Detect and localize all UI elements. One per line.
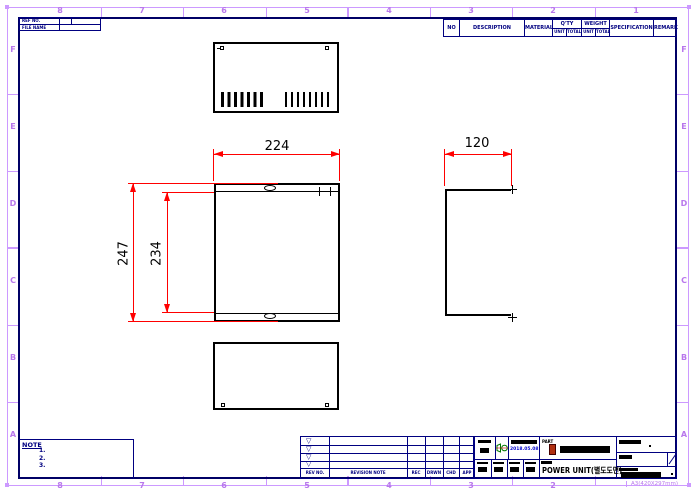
- plus-mark: [512, 313, 513, 322]
- bottom-view: [213, 342, 339, 410]
- app-header: APP: [459, 471, 475, 475]
- zone-tick: [512, 7, 513, 17]
- tick-mark: [319, 187, 320, 196]
- table-line: [616, 466, 676, 467]
- corner-mark: [5, 483, 9, 487]
- table-line: [301, 468, 473, 469]
- screw-hole-tail: [217, 48, 220, 49]
- side-view-web: [445, 189, 447, 316]
- col-description: DESCRIPTION: [460, 26, 524, 31]
- zone-tick: [595, 7, 596, 17]
- dim-arrow: [445, 151, 454, 157]
- col-no: NO: [444, 26, 459, 31]
- file-name-label: FILE NAME: [22, 26, 46, 30]
- flange-line-top: [215, 191, 339, 192]
- dim-arrow: [130, 313, 136, 322]
- note-item: 3.: [39, 463, 45, 469]
- dim-text-120: 120: [454, 136, 500, 151]
- table-line: [59, 18, 60, 30]
- dimension-line: [167, 192, 168, 313]
- title-label: [541, 461, 552, 464]
- rev-no-header: REV NO.: [301, 471, 329, 475]
- zone-label-col: 5: [297, 481, 317, 490]
- drwn-header: DRWN: [425, 471, 443, 475]
- col-remark: REMARK: [654, 26, 677, 31]
- zone-label-col: 1: [626, 6, 646, 15]
- dim-arrow: [164, 192, 170, 201]
- plus-mark: [512, 185, 513, 194]
- dimension-line: [445, 154, 512, 155]
- corner-mark: [687, 5, 691, 9]
- zone-tick: [677, 402, 689, 403]
- drawing-sheet: 8 7 6 5 4 3 2 1 8 7 6 5 4 3 2 F E D C B …: [0, 0, 696, 492]
- col-weight-unit: UNIT: [582, 30, 595, 34]
- zone-label-col: 2: [543, 6, 563, 15]
- zone-label-row: D: [8, 199, 18, 208]
- title-block: 2018.05.08 PART POWER UNIT(별도도면): [474, 436, 677, 479]
- screw-hole: [220, 46, 224, 50]
- zone-tick: [677, 325, 689, 326]
- redacted-signature: [478, 467, 487, 472]
- issued-date-value: 2018.05.08: [510, 447, 538, 452]
- zone-tick: [677, 94, 689, 95]
- issued-date-label: [511, 440, 537, 444]
- zone-label-row: B: [8, 353, 18, 362]
- redacted-label: [619, 468, 638, 471]
- zone-tick: [7, 94, 18, 95]
- table-line: [491, 459, 492, 478]
- redacted-label: [478, 440, 491, 443]
- zone-label-row: C: [8, 276, 18, 285]
- zone-label-row: A: [8, 430, 18, 439]
- zone-tick: [7, 325, 18, 326]
- col-specification: SPECIFICATION: [610, 26, 653, 31]
- drawing-title: POWER UNIT(별도도면): [542, 465, 622, 476]
- zone-label-col: 3: [461, 6, 481, 15]
- zone-label-col: 3: [461, 481, 481, 490]
- zone-label-col: 7: [132, 481, 152, 490]
- revision-note-header: REVISION NOTE: [329, 471, 407, 475]
- latch-top: [264, 185, 276, 191]
- table-line: [475, 459, 616, 460]
- zone-label-row: E: [8, 122, 18, 131]
- rec-header: REC: [407, 471, 425, 475]
- dim-arrow: [164, 304, 170, 313]
- zone-label-row: E: [679, 122, 689, 131]
- redacted-company-name: [560, 446, 610, 453]
- zone-label-col: 8: [50, 6, 70, 15]
- corner-mark: [5, 5, 9, 9]
- note-item: 1.: [39, 448, 45, 454]
- screw-hole: [325, 46, 329, 50]
- screw-hole: [325, 403, 329, 407]
- zone-label-row: D: [679, 199, 689, 208]
- col-weight-total: TOTAL: [596, 30, 609, 34]
- zone-label-col: 5: [297, 6, 317, 15]
- redacted-label: [619, 440, 641, 444]
- note-box-line: [133, 439, 134, 479]
- center-mark: [7, 247, 18, 249]
- table-line: [539, 437, 540, 478]
- parts-list-header: NO DESCRIPTION MATERIAL Q'TY WEIGHT UNIT…: [443, 19, 677, 37]
- zone-label-col: 6: [214, 481, 234, 490]
- zone-label-row: C: [679, 276, 689, 285]
- zone-label-col: 8: [50, 481, 70, 490]
- zone-label-col: 4: [379, 481, 399, 490]
- table-line: [71, 18, 72, 24]
- zone-tick: [7, 402, 18, 403]
- zone-label-row: A: [679, 430, 689, 439]
- vent-slots-right: [285, 92, 329, 107]
- dim-arrow: [503, 151, 512, 157]
- revision-marker: ▽: [306, 445, 311, 453]
- redacted-value: [649, 445, 651, 447]
- redacted-value: [621, 472, 661, 478]
- zone-label-col: 4: [379, 6, 399, 15]
- redacted-label: [509, 462, 520, 464]
- revision-marker: ▽: [306, 437, 311, 445]
- center-mark: [347, 7, 349, 17]
- zone-tick: [677, 171, 689, 172]
- revision-table: ▽ ▽ ▽ ▽ REV NO. REVISION NOTE REC DRWN C…: [300, 436, 474, 479]
- revision-marker: ▽: [306, 460, 311, 468]
- dimension-line: [214, 154, 340, 155]
- center-mark: [677, 247, 689, 249]
- redacted-signature: [526, 467, 535, 472]
- extension-line: [128, 183, 278, 184]
- sheet-size-label: A3(420X297mm): [631, 481, 678, 487]
- table-line: [523, 459, 524, 478]
- extension-line: [128, 321, 278, 322]
- flange-line-bottom: [215, 313, 339, 314]
- corner-mark: [687, 483, 691, 487]
- redacted-label: [493, 462, 504, 464]
- col-qty: Q'TY: [553, 22, 581, 27]
- redacted-label: [477, 462, 488, 464]
- col-weight: WEIGHT: [582, 22, 609, 27]
- zone-label-col: 2: [543, 481, 563, 490]
- dim-text-247: 247: [117, 239, 132, 269]
- redacted-value: [480, 448, 489, 453]
- ref-no-label: REF NO.: [22, 19, 40, 23]
- zone-tick: [183, 7, 184, 17]
- screw-hole: [221, 403, 225, 407]
- zone-label-row: B: [679, 353, 689, 362]
- redacted-label: [525, 462, 536, 464]
- tick-mark: [330, 187, 331, 196]
- side-view-bottom-flange: [445, 314, 511, 316]
- dim-arrow: [331, 151, 340, 157]
- side-view-top-flange: [445, 189, 511, 191]
- dim-arrow: [214, 151, 223, 157]
- table-line: [301, 453, 473, 454]
- table-line: [507, 459, 508, 478]
- latch-bottom: [264, 313, 276, 319]
- zone-label-row: F: [679, 45, 689, 54]
- scale-slash-icon: [667, 452, 678, 466]
- unit-label: [619, 455, 632, 459]
- front-view: [214, 183, 340, 322]
- third-angle-projection-icon: [496, 443, 508, 453]
- dimension-line: [133, 183, 134, 322]
- redacted-value: [671, 473, 673, 475]
- chd-header: CHD: [443, 471, 459, 475]
- table-line: [301, 445, 473, 446]
- zone-tick: [7, 171, 18, 172]
- zone-label-col: 6: [214, 6, 234, 15]
- col-material: MATERIAL: [525, 26, 552, 31]
- zone-label-row: F: [8, 45, 18, 54]
- col-qty-total: TOTAL: [567, 30, 580, 34]
- reference-table: REF NO. FILE NAME: [19, 17, 101, 31]
- col-qty-unit: UNIT: [553, 30, 566, 34]
- dim-text-224: 224: [254, 139, 300, 154]
- table-line: [301, 461, 473, 462]
- dim-arrow: [130, 183, 136, 192]
- size-label-tick: [626, 481, 627, 487]
- redacted-signature: [510, 467, 519, 472]
- zone-tick: [266, 7, 267, 17]
- vent-slots-left: [221, 92, 266, 107]
- redacted-signature: [494, 467, 503, 472]
- zone-tick: [430, 7, 431, 17]
- table-line: [508, 437, 509, 459]
- dim-text-234: 234: [150, 239, 165, 269]
- company-logo: [549, 444, 556, 455]
- zone-label-col: 7: [132, 6, 152, 15]
- zone-tick: [101, 7, 102, 17]
- note-box-line: [19, 439, 133, 440]
